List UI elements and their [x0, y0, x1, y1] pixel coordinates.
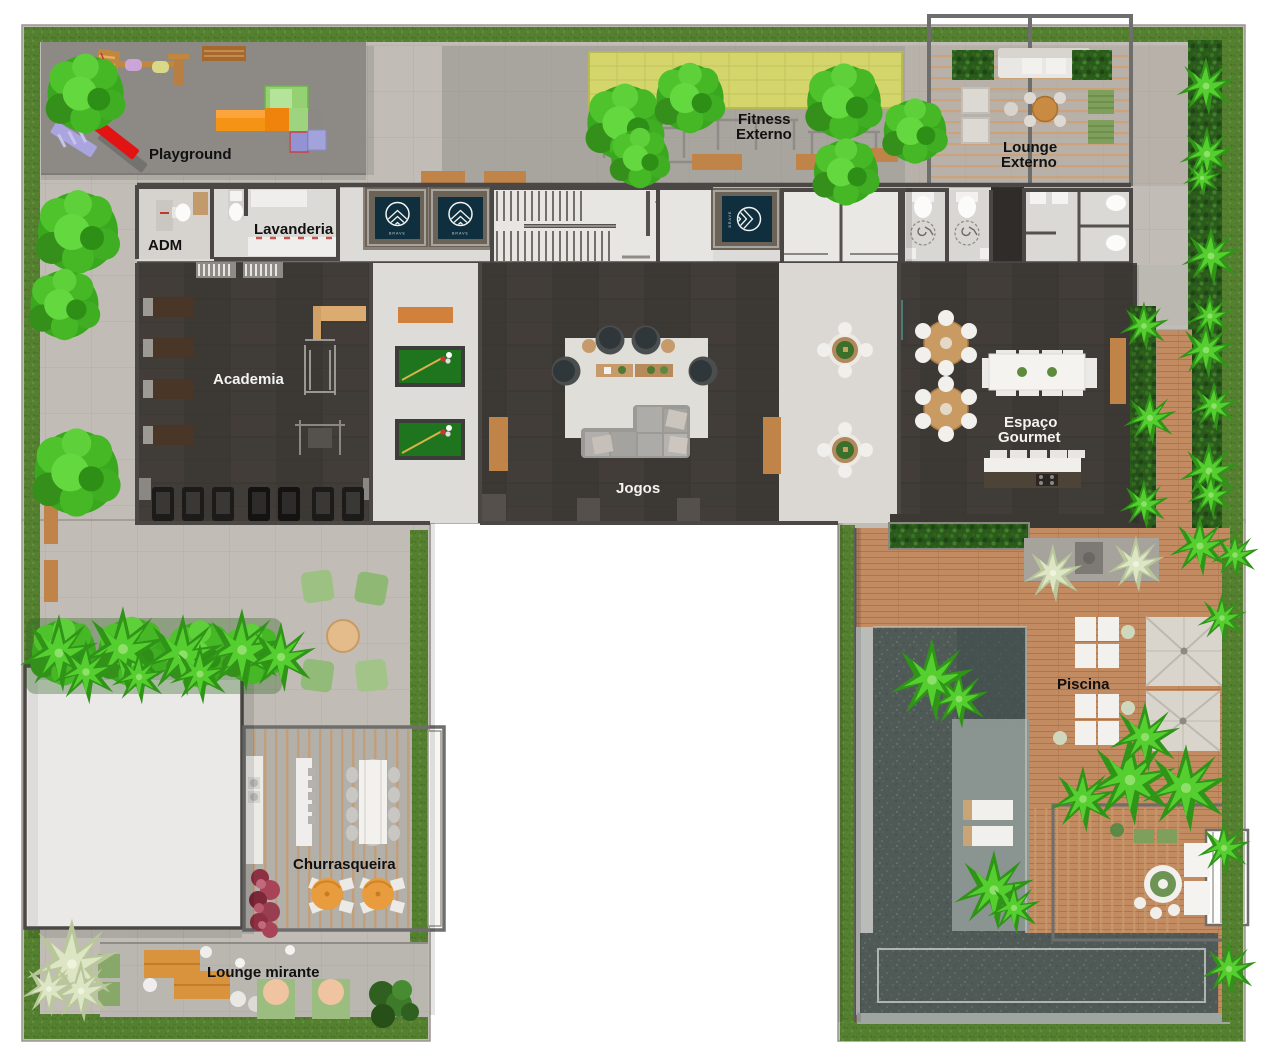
- svg-text:Piscina: Piscina: [1057, 676, 1110, 693]
- svg-text:Jogos: Jogos: [616, 480, 660, 497]
- svg-text:Externo: Externo: [1001, 154, 1057, 171]
- svg-text:BRAVE: BRAVE: [452, 232, 469, 236]
- svg-text:BRAVE: BRAVE: [389, 232, 406, 236]
- svg-text:Lounge mirante: Lounge mirante: [207, 964, 320, 981]
- svg-text:Gourmet: Gourmet: [998, 429, 1061, 446]
- svg-text:Externo: Externo: [736, 126, 792, 143]
- svg-text:Playground: Playground: [149, 146, 232, 163]
- svg-text:Academia: Academia: [213, 371, 285, 388]
- svg-text:ADM: ADM: [148, 237, 182, 254]
- svg-text:BRAVE: BRAVE: [728, 211, 732, 228]
- svg-text:Lavanderia: Lavanderia: [254, 221, 334, 238]
- svg-text:Churrasqueira: Churrasqueira: [293, 856, 396, 873]
